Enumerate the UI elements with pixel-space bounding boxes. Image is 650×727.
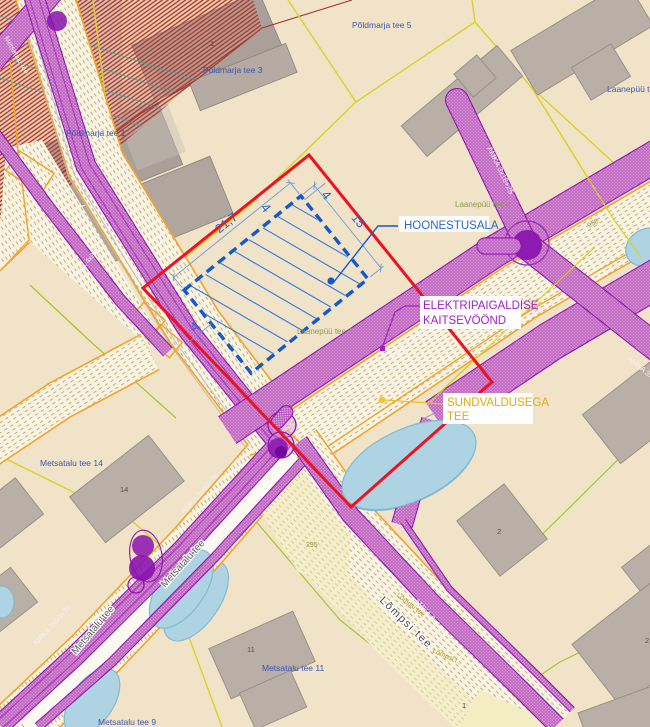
svg-text:Metsatalu tee 14: Metsatalu tee 14 bbox=[40, 458, 103, 468]
svg-text:HOONESTUSALA: HOONESTUSALA bbox=[404, 220, 499, 232]
svg-text:2: 2 bbox=[645, 636, 649, 645]
svg-text:2: 2 bbox=[497, 527, 501, 536]
svg-text:Laanepüü te: Laanepüü te bbox=[607, 84, 650, 94]
svg-text:Metsatalu tee 9: Metsatalu tee 9 bbox=[98, 717, 156, 727]
svg-text:Metsatalu tee 11: Metsatalu tee 11 bbox=[262, 663, 324, 673]
svg-text:KAITSEVÖÖND: KAITSEVÖÖND bbox=[423, 315, 506, 327]
svg-text:Põldmarja tee 1: Põldmarja tee 1 bbox=[66, 128, 126, 138]
svg-text:Laanepüü tee 2: Laanepüü tee 2 bbox=[297, 327, 353, 336]
svg-text:295: 295 bbox=[306, 542, 318, 549]
svg-text:TEE: TEE bbox=[447, 411, 470, 423]
svg-text:11: 11 bbox=[247, 645, 255, 654]
svg-text:1: 1 bbox=[210, 39, 214, 48]
svg-text:Põldmarja tee 3: Põldmarja tee 3 bbox=[203, 65, 263, 75]
svg-text:14: 14 bbox=[120, 485, 128, 494]
svg-text:ELEKTRIPAIGALDISE: ELEKTRIPAIGALDISE bbox=[423, 300, 539, 312]
svg-text:Laanepüü tee 4: Laanepüü tee 4 bbox=[455, 200, 511, 209]
svg-text:Põldmarja tee 5: Põldmarja tee 5 bbox=[352, 20, 412, 30]
svg-text:SUNDVALDUSEGA: SUNDVALDUSEGA bbox=[447, 397, 549, 409]
svg-text:1: 1 bbox=[462, 701, 466, 710]
